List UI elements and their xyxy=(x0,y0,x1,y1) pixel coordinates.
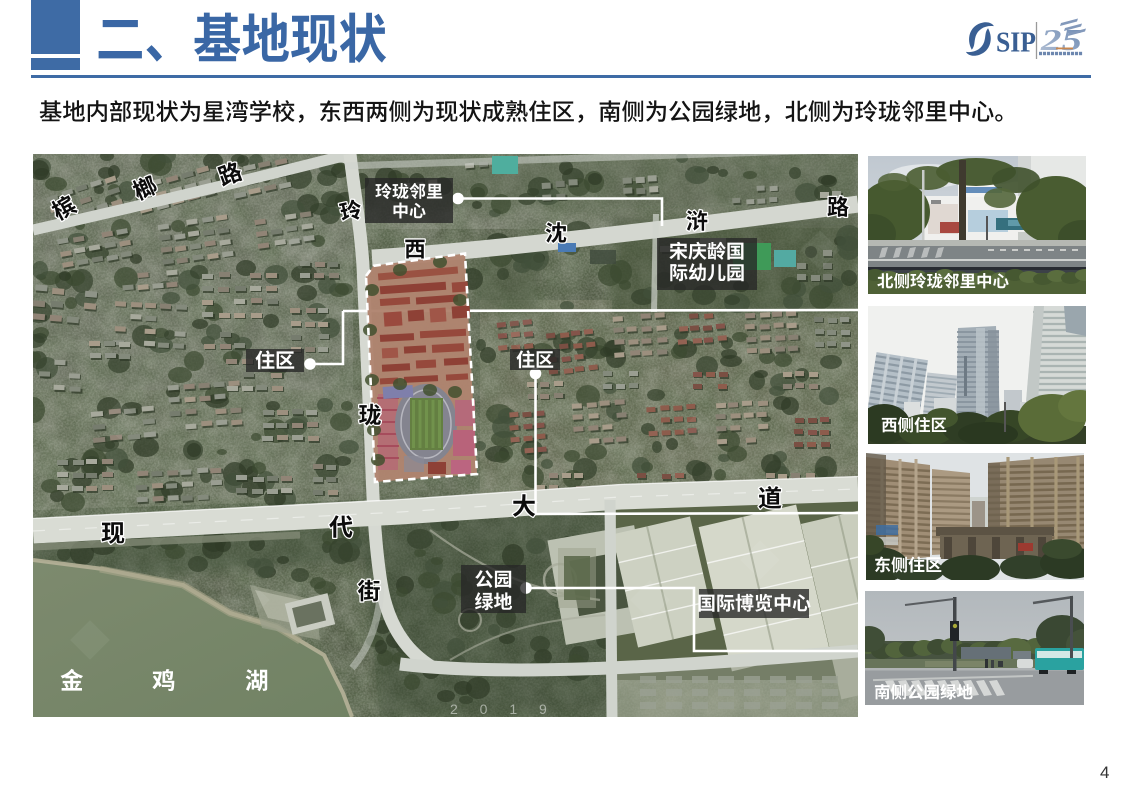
svg-text:2 0 1 9: 2 0 1 9 xyxy=(450,701,556,717)
svg-text:SIP: SIP xyxy=(996,27,1036,59)
